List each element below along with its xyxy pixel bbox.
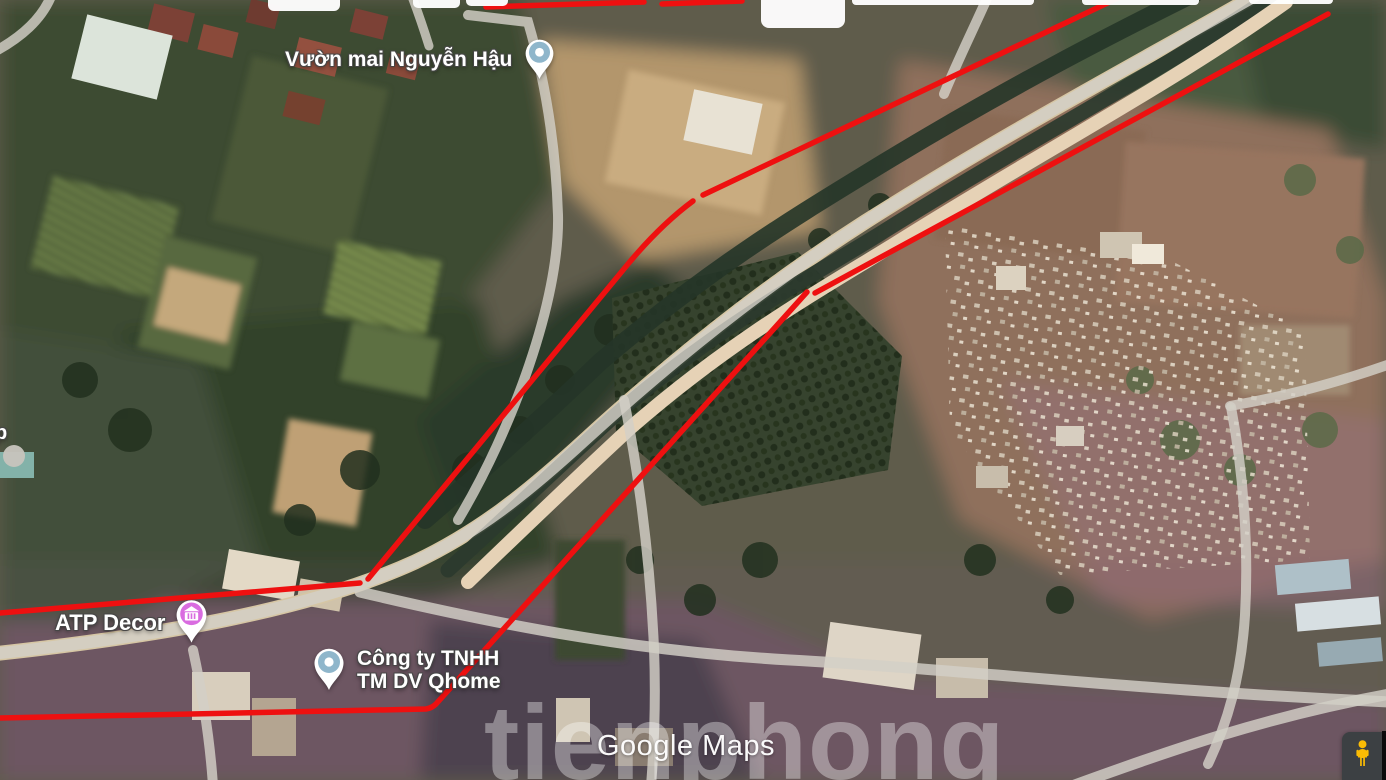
- map-viewport[interactable]: Vườn mai Nguyễn Hậu ATP Decor: [0, 0, 1386, 780]
- poi-atp-decor[interactable]: ATP Decor: [55, 596, 210, 649]
- clipped-poi-dot: [3, 445, 25, 467]
- garden-pin-icon[interactable]: [522, 36, 557, 85]
- poi-clipped-left: p: [0, 423, 7, 445]
- poi-qhome-company[interactable]: Công ty TNHH TM DV Qhome: [311, 645, 501, 696]
- poi-qhome-label-line1: Công ty TNHH: [357, 648, 501, 671]
- satellite-map-canvas[interactable]: [0, 0, 1386, 780]
- poi-qhome-label-line2: TM DV Qhome: [357, 671, 501, 694]
- poi-nguyen-hau-label[interactable]: Vườn mai Nguyễn Hậu: [285, 49, 512, 72]
- company-pin-icon[interactable]: [311, 645, 347, 696]
- pegman-icon: [1353, 740, 1372, 772]
- poi-nguyen-hau[interactable]: Vườn mai Nguyễn Hậu: [285, 36, 557, 85]
- poi-qhome-label[interactable]: Công ty TNHH TM DV Qhome: [357, 648, 501, 693]
- poi-atp-decor-label[interactable]: ATP Decor: [55, 611, 165, 635]
- pegman-button[interactable]: [1342, 732, 1382, 780]
- poi-clipped-left-label: p: [0, 423, 7, 445]
- home-goods-store-pin-icon[interactable]: [173, 596, 210, 649]
- edge-control-strip: [1382, 731, 1386, 780]
